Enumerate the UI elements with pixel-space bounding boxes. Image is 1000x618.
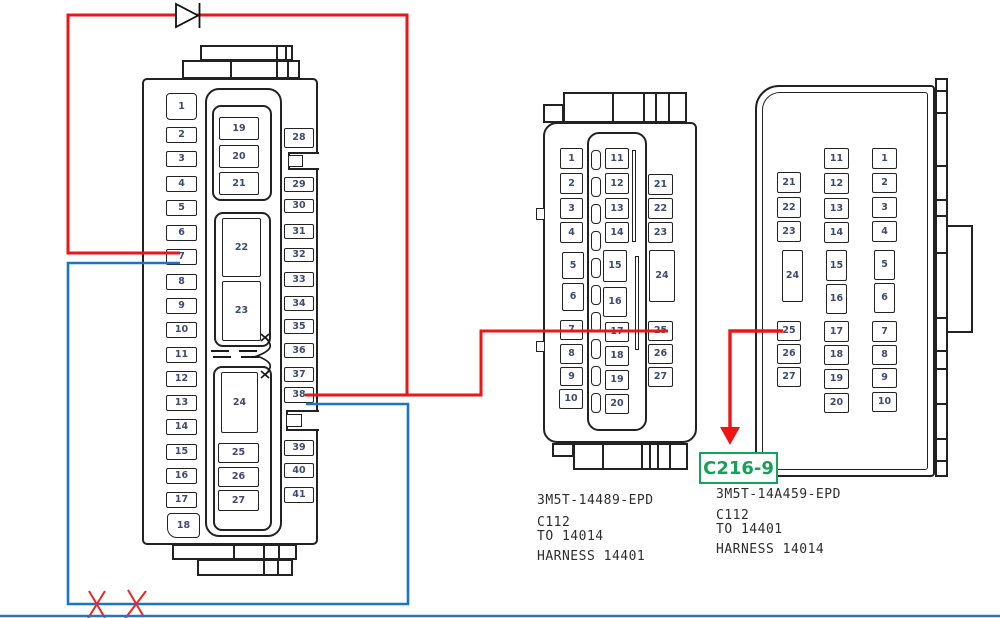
connector-middle-pin-24: 24	[649, 250, 675, 302]
connector-middle-pin-16: 16	[603, 287, 627, 317]
connector-middle-pin-19: 19	[605, 370, 629, 390]
connector-right-pin-25: 25	[777, 321, 801, 341]
connector-left-pin-33: 33	[284, 272, 314, 287]
connector-middle-pin-1: 1	[560, 148, 583, 169]
connector-right-rail-tick	[935, 460, 948, 462]
connector-left-pin-23: 23	[222, 281, 261, 341]
connector-left-pin-1: 1	[166, 93, 197, 120]
connector-middle-pin-5: 5	[562, 252, 584, 279]
connector-middle-pin-22: 22	[648, 198, 673, 219]
connector-left-pin-34: 34	[284, 296, 314, 311]
tab-divider	[276, 45, 278, 61]
connector-middle-pin-7: 7	[560, 320, 583, 340]
connector-left-pin-13: 13	[166, 395, 197, 411]
connector-left-pin-20: 20	[219, 145, 259, 168]
connector-left-pin-28: 28	[284, 128, 314, 148]
connector-left-pin-8: 8	[166, 274, 197, 290]
connector-right-pin-8: 8	[872, 345, 897, 365]
tab-divider	[278, 544, 280, 560]
connector-middle-pin-11: 11	[605, 148, 629, 169]
connector-right-pin-5: 5	[874, 250, 895, 280]
connector-middle-small-slot	[591, 177, 601, 197]
connector-left-pin-9: 9	[166, 298, 197, 314]
connector-left-pin-14: 14	[166, 419, 197, 435]
connector-right-pin-7: 7	[872, 321, 897, 342]
connector-right-pin-19: 19	[824, 369, 849, 389]
connector-left-pin-31: 31	[284, 224, 314, 239]
connector-left-pin-37: 37	[284, 367, 314, 382]
connector-left-pin-17: 17	[166, 492, 197, 508]
connector-middle-pin-26: 26	[648, 344, 673, 364]
connector-left-pin-10: 10	[166, 322, 197, 338]
tab-divider	[263, 544, 265, 560]
connector-right-pin-23: 23	[777, 221, 801, 242]
connector-left-pin-18: 18	[167, 513, 200, 538]
connector-middle-pin-6: 6	[562, 283, 584, 311]
connector-middle-small-slot	[591, 339, 601, 359]
connector-right-pin-6: 6	[874, 283, 895, 313]
tab-divider	[233, 544, 235, 560]
connector-left-pin-15: 15	[166, 444, 197, 460]
connector-left-pin-7: 7	[166, 249, 197, 265]
tab-divider	[276, 60, 278, 79]
connector-left-pin-4: 4	[166, 176, 197, 192]
connector-middle-pin-25: 25	[648, 321, 673, 341]
connector-left-pin-39: 39	[284, 440, 314, 456]
connector-right-rail-tick	[935, 438, 948, 440]
connector-middle-pin-23: 23	[648, 222, 673, 243]
connector-middle-pin-3: 3	[560, 198, 583, 219]
connector-middle-pin-8: 8	[560, 344, 583, 364]
tab-divider	[641, 443, 643, 470]
tab-divider	[285, 45, 287, 61]
connector-left-pin-36: 36	[284, 343, 314, 358]
connector-middle-pin-17: 17	[605, 322, 629, 342]
connector-callout: C216-9	[699, 452, 778, 484]
connector-middle-pin-9: 9	[560, 367, 583, 386]
connector-left-pin-35: 35	[284, 319, 314, 334]
connector-right-pin-1: 1	[872, 148, 897, 169]
connector-left-pin-25: 25	[218, 443, 259, 463]
connector-right-pin-20: 20	[824, 393, 849, 413]
connector-left-pin-11: 11	[166, 347, 197, 363]
connector-left-pin-19: 19	[219, 117, 259, 140]
connector-left-pin-40: 40	[284, 463, 314, 478]
connector-right-rail-tick	[935, 112, 948, 114]
connector-right-rail-tick	[935, 252, 948, 254]
connector-middle-pin-20: 20	[605, 394, 629, 414]
connector-middle-pin-4: 4	[560, 222, 583, 243]
connector-left-pin-32: 32	[284, 248, 314, 262]
connector-left-pin-24: 24	[221, 372, 258, 433]
connector-right-pin-21: 21	[777, 172, 801, 193]
connector-middle-small-slot	[591, 204, 601, 224]
connector-left-pin-5: 5	[166, 200, 197, 216]
connector-right-pin-16: 16	[826, 284, 847, 314]
connector-right-pin-15: 15	[826, 250, 847, 281]
connector-middle-pin-15: 15	[603, 250, 627, 282]
connector-right-rail-tick	[935, 403, 948, 405]
tab-divider	[649, 443, 651, 470]
connector-right-pin-2: 2	[872, 173, 897, 193]
connector-right-rail-tick	[935, 368, 948, 370]
connector-left-pin-41: 41	[284, 487, 314, 503]
tab-divider	[277, 559, 279, 576]
tab-divider	[655, 92, 657, 123]
connector-right-pin-10: 10	[872, 392, 897, 412]
connector-right-pin-17: 17	[824, 321, 849, 342]
connector-left-pin-30: 30	[284, 199, 314, 213]
connector-right-rail-tick	[935, 90, 948, 92]
connector-right-pin-4: 4	[872, 221, 897, 242]
connector-right-pin-24: 24	[782, 250, 803, 302]
connector-left-pin-2: 2	[166, 127, 197, 143]
connector-middle-pin-18: 18	[605, 346, 629, 366]
connector-left-pin-29: 29	[284, 177, 314, 192]
connector-middle-small-slot	[591, 231, 601, 251]
connector-middle-small-slot	[591, 393, 601, 413]
connector-right-pin-27: 27	[777, 367, 801, 387]
connector-middle-pin-21: 21	[648, 174, 673, 195]
tab-divider	[263, 559, 265, 576]
tab-divider	[668, 92, 670, 123]
connector-right-pin-26: 26	[777, 344, 801, 364]
connector-left-pin-38: 38	[284, 387, 314, 403]
connector-right-pin-3: 3	[872, 197, 897, 218]
connector-middle-pin-12: 12	[605, 173, 629, 194]
connector-middle-small-slot	[591, 285, 601, 305]
connector-right-rail-tick	[935, 199, 948, 201]
connector-left-pin-6: 6	[166, 225, 197, 241]
wiring-diagram: 1234567891011121314151617181920212223242…	[0, 0, 1000, 618]
connector-right-rail-tick	[935, 317, 948, 319]
connector-right-pin-22: 22	[777, 197, 801, 218]
tab-divider	[287, 60, 289, 79]
connector-middle-small-slot	[591, 150, 601, 170]
connector-middle-pin-27: 27	[648, 367, 673, 387]
connector-right-pin-14: 14	[824, 222, 849, 243]
connector-left-pin-27: 27	[218, 490, 259, 511]
connector-middle-pin-2: 2	[560, 173, 583, 194]
connector-right-rail-tick	[935, 350, 948, 352]
connector-left-pin-12: 12	[166, 371, 197, 387]
connector-left-pin-21: 21	[219, 172, 259, 195]
tab-divider	[230, 60, 232, 79]
connector-right-rail-tick	[935, 165, 948, 167]
connector-left-pin-3: 3	[166, 151, 197, 167]
tab-divider	[643, 92, 645, 123]
connector-right-pin-13: 13	[824, 198, 849, 219]
connector-middle-pin-14: 14	[605, 222, 629, 243]
connector-right-pin-18: 18	[824, 345, 849, 365]
connector-middle-small-slot	[591, 258, 601, 278]
connector-left-pin-16: 16	[166, 468, 197, 484]
connector-right-pin-11: 11	[824, 148, 849, 169]
connector-right-pin-12: 12	[824, 173, 849, 194]
pins-layer: 1234567891011121314151617181920212223242…	[0, 0, 1000, 618]
connector-right-pin-9: 9	[872, 368, 897, 388]
connector-middle-small-slot	[591, 312, 601, 332]
connector-middle-pin-13: 13	[605, 198, 629, 219]
tab-divider	[669, 443, 671, 470]
connector-right-rail-tick	[935, 215, 948, 217]
tab-divider	[657, 443, 659, 470]
connector-left-pin-26: 26	[218, 467, 259, 487]
tab-divider	[612, 92, 614, 123]
connector-middle-small-slot	[591, 366, 601, 386]
tab-divider	[602, 443, 604, 470]
connector-left-pin-22: 22	[222, 218, 261, 277]
connector-middle-pin-10: 10	[559, 389, 583, 409]
